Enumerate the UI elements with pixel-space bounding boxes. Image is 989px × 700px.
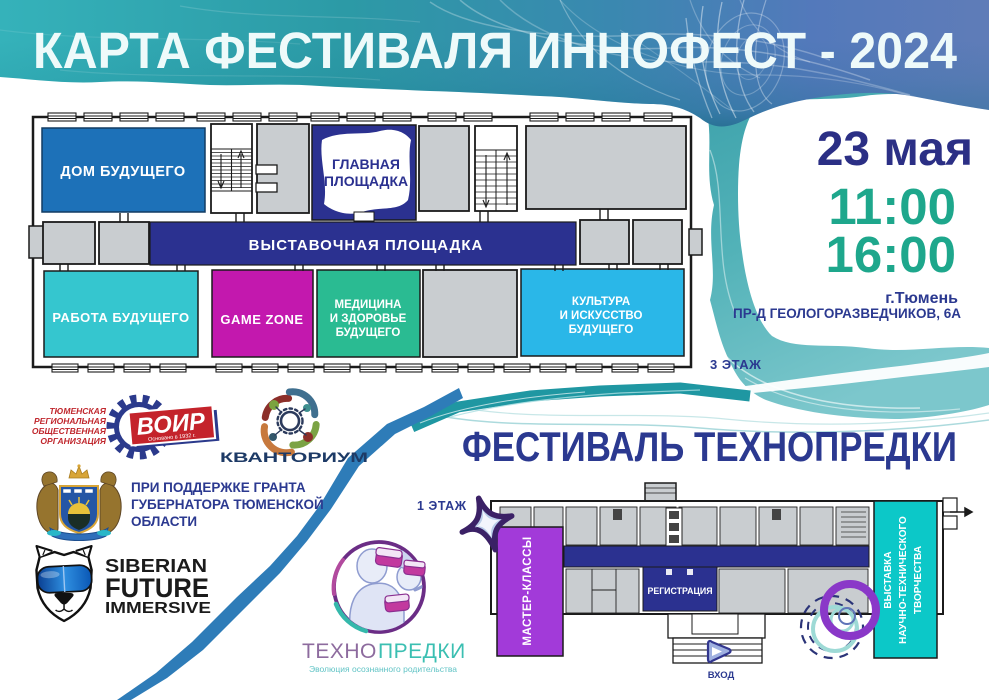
svg-text:FUTURE: FUTURE <box>105 573 209 603</box>
svg-text:1 ЭТАЖ: 1 ЭТАЖ <box>417 499 467 513</box>
svg-text:ФЕСТИВАЛЬ ТЕХНОПРЕДКИ: ФЕСТИВАЛЬ ТЕХНОПРЕДКИ <box>462 423 957 470</box>
svg-text:МЕДИЦИНА: МЕДИЦИНА <box>335 299 402 311</box>
svg-text:ОБЩЕСТВЕННАЯ: ОБЩЕСТВЕННАЯ <box>32 426 107 436</box>
svg-text:НАУЧНО-ТЕХНИЧЕСКОГО: НАУЧНО-ТЕХНИЧЕСКОГО <box>898 516 909 644</box>
svg-text:ОБЛАСТИ: ОБЛАСТИ <box>131 514 197 529</box>
svg-text:ТЮМЕНСКАЯ: ТЮМЕНСКАЯ <box>49 406 106 416</box>
svg-text:ПР-Д ГЕОЛОГОРАЗВЕДЧИКОВ, 6А: ПР-Д ГЕОЛОГОРАЗВЕДЧИКОВ, 6А <box>733 306 961 321</box>
svg-text:РЕГИСТРАЦИЯ: РЕГИСТРАЦИЯ <box>647 586 712 596</box>
svg-text:16:00: 16:00 <box>826 226 956 283</box>
svg-text:ПЛОЩАДКА: ПЛОЩАДКА <box>324 173 408 189</box>
svg-text:ВЫСТАВКА: ВЫСТАВКА <box>883 551 894 608</box>
svg-text:ОРГАНИЗАЦИЯ: ОРГАНИЗАЦИЯ <box>40 436 106 446</box>
svg-text:И ИСКУССТВО: И ИСКУССТВО <box>560 310 643 322</box>
svg-text:23 мая: 23 мая <box>817 123 973 176</box>
svg-text:БУДУЩЕГО: БУДУЩЕГО <box>569 324 634 336</box>
svg-text:ГЛАВНАЯ: ГЛАВНАЯ <box>332 156 400 172</box>
svg-text:КВАНТОРИУМ: КВАНТОРИУМ <box>220 449 368 465</box>
svg-text:ТЕХНО: ТЕХНО <box>302 640 377 663</box>
svg-text:РАБОТА БУДУЩЕГО: РАБОТА БУДУЩЕГО <box>52 310 189 325</box>
svg-text:ПРИ ПОДДЕРЖКЕ ГРАНТА: ПРИ ПОДДЕРЖКЕ ГРАНТА <box>131 480 306 495</box>
svg-text:ТВОРЧЕСТВА: ТВОРЧЕСТВА <box>913 546 924 614</box>
svg-text:ДОМ БУДУЩЕГО: ДОМ БУДУЩЕГО <box>60 164 185 180</box>
svg-text:ВХОД: ВХОД <box>708 670 735 681</box>
svg-text:ВЫСТАВОЧНАЯ ПЛОЩАДКА: ВЫСТАВОЧНАЯ ПЛОЩАДКА <box>249 237 484 254</box>
svg-text:КАРТА ФЕСТИВАЛЯ ИННОФЕСТ - 202: КАРТА ФЕСТИВАЛЯ ИННОФЕСТ - 2024 <box>33 22 958 79</box>
svg-text:И ЗДОРОВЬЕ: И ЗДОРОВЬЕ <box>330 313 407 325</box>
svg-text:ГУБЕРНАТОРА ТЮМЕНСКОЙ: ГУБЕРНАТОРА ТЮМЕНСКОЙ <box>131 497 324 512</box>
svg-text:IMMERSIVE: IMMERSIVE <box>105 600 211 617</box>
svg-text:МАСТЕР-КЛАССЫ: МАСТЕР-КЛАССЫ <box>522 536 534 645</box>
svg-text:РЕГИОНАЛЬНАЯ: РЕГИОНАЛЬНАЯ <box>34 416 107 426</box>
svg-text:3 ЭТАЖ: 3 ЭТАЖ <box>710 357 761 372</box>
svg-text:ПРЕДКИ: ПРЕДКИ <box>378 640 466 663</box>
svg-text:БУДУЩЕГО: БУДУЩЕГО <box>336 327 401 339</box>
svg-text:Эволюция осознанного родительс: Эволюция осознанного родительства <box>309 664 457 674</box>
svg-text:КУЛЬТУРА: КУЛЬТУРА <box>572 296 630 308</box>
svg-text:GAME ZONE: GAME ZONE <box>220 312 303 327</box>
svg-text:г.Тюмень: г.Тюмень <box>885 290 958 307</box>
